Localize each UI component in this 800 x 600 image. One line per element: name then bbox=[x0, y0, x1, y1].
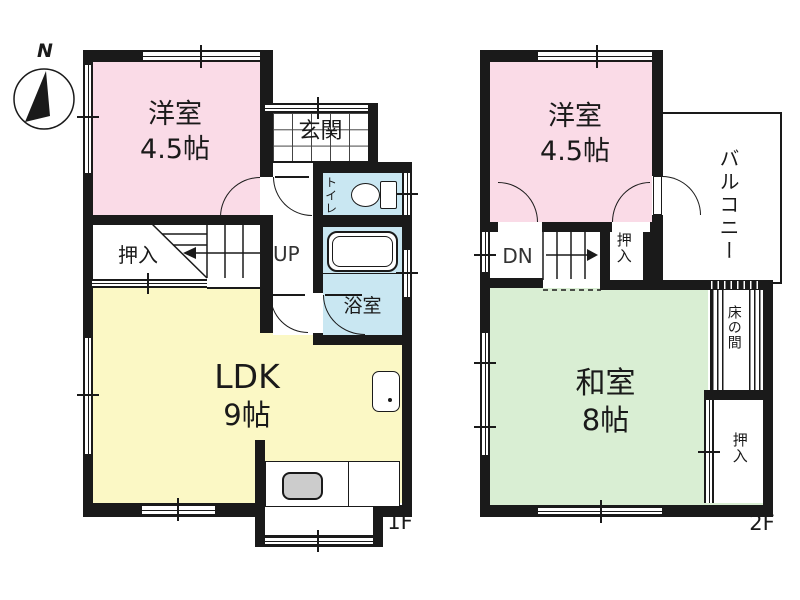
room-label-western-2f: 洋室 bbox=[485, 103, 665, 131]
wall bbox=[313, 162, 323, 293]
washbasin-icon bbox=[372, 371, 400, 412]
window-tick bbox=[596, 45, 598, 68]
door-leaf bbox=[272, 294, 305, 296]
bathtub-inner bbox=[332, 236, 393, 267]
wall bbox=[402, 162, 412, 517]
room-label-balcony: バルコニー bbox=[717, 128, 738, 283]
wall bbox=[763, 282, 773, 517]
window bbox=[480, 228, 490, 272]
window bbox=[538, 50, 652, 62]
window-tick bbox=[474, 254, 496, 256]
wall bbox=[480, 222, 498, 232]
balcony-door-leaf bbox=[653, 176, 662, 215]
stairs-dn-label: DN bbox=[495, 246, 540, 267]
toilet-bowl-icon bbox=[351, 183, 380, 207]
tokonoma-hatch bbox=[749, 290, 763, 390]
window-tick bbox=[177, 498, 179, 521]
bathroom-divider bbox=[323, 273, 402, 274]
room-label-closet-1f: 押入 bbox=[103, 245, 173, 266]
floor-plan: N bbox=[0, 0, 800, 600]
room-size-western-1f: 4.5帖 bbox=[85, 136, 265, 164]
wall bbox=[480, 278, 543, 288]
counter-divider bbox=[348, 461, 349, 507]
window bbox=[83, 338, 93, 454]
room-size-western-2f: 4.5帖 bbox=[485, 138, 665, 166]
door-tick bbox=[317, 97, 319, 119]
wall bbox=[704, 390, 763, 400]
window-tick bbox=[317, 530, 319, 552]
door-arc-ldk bbox=[270, 295, 308, 333]
room-label-tokonoma: 床の間 bbox=[726, 303, 741, 352]
room-size-ldk: 9帖 bbox=[147, 400, 347, 430]
wall bbox=[313, 215, 412, 227]
stairs-edge-line bbox=[207, 287, 265, 289]
door-arc-hall bbox=[273, 177, 312, 216]
window-tick bbox=[474, 362, 496, 364]
door-tick bbox=[147, 273, 149, 294]
window bbox=[265, 536, 373, 546]
room-label-toilet: トイレ bbox=[324, 176, 337, 215]
room-label-western-1f: 洋室 bbox=[85, 101, 265, 129]
window bbox=[480, 333, 490, 455]
room-label-entrance: 玄関 bbox=[273, 120, 368, 143]
window-tick bbox=[200, 45, 202, 68]
door-tick bbox=[698, 451, 720, 453]
door-leaf bbox=[275, 176, 309, 178]
floor-label-1f: 1F bbox=[383, 511, 417, 533]
stove-icon bbox=[282, 472, 323, 500]
window-tick bbox=[396, 193, 418, 195]
room-label-bathroom: 浴室 bbox=[323, 297, 402, 317]
room-label-japanese: 和室 bbox=[513, 368, 698, 400]
wall bbox=[313, 335, 412, 345]
compass-north-label: N bbox=[33, 42, 57, 62]
tokonoma-hatch bbox=[712, 290, 725, 390]
stairs-up-label: UP bbox=[273, 244, 313, 265]
floor-label-2f: 2F bbox=[744, 512, 780, 534]
toilet-tank-icon bbox=[380, 181, 397, 209]
balcony-edge bbox=[660, 232, 662, 284]
room-size-japanese: 8帖 bbox=[513, 405, 698, 435]
room-label-ldk: LDK bbox=[147, 360, 347, 395]
closet-sliding-door bbox=[92, 279, 207, 288]
room-label-closet-upper-2f: 押入 bbox=[615, 232, 631, 264]
washbasin-dot bbox=[388, 398, 392, 402]
window-tick bbox=[474, 426, 496, 428]
wall bbox=[313, 162, 412, 173]
room-label-closet-lower-2f: 押入 bbox=[731, 432, 747, 464]
wall bbox=[260, 217, 273, 333]
window-tick bbox=[77, 394, 99, 396]
wall bbox=[255, 440, 265, 547]
window-tick bbox=[600, 500, 602, 523]
